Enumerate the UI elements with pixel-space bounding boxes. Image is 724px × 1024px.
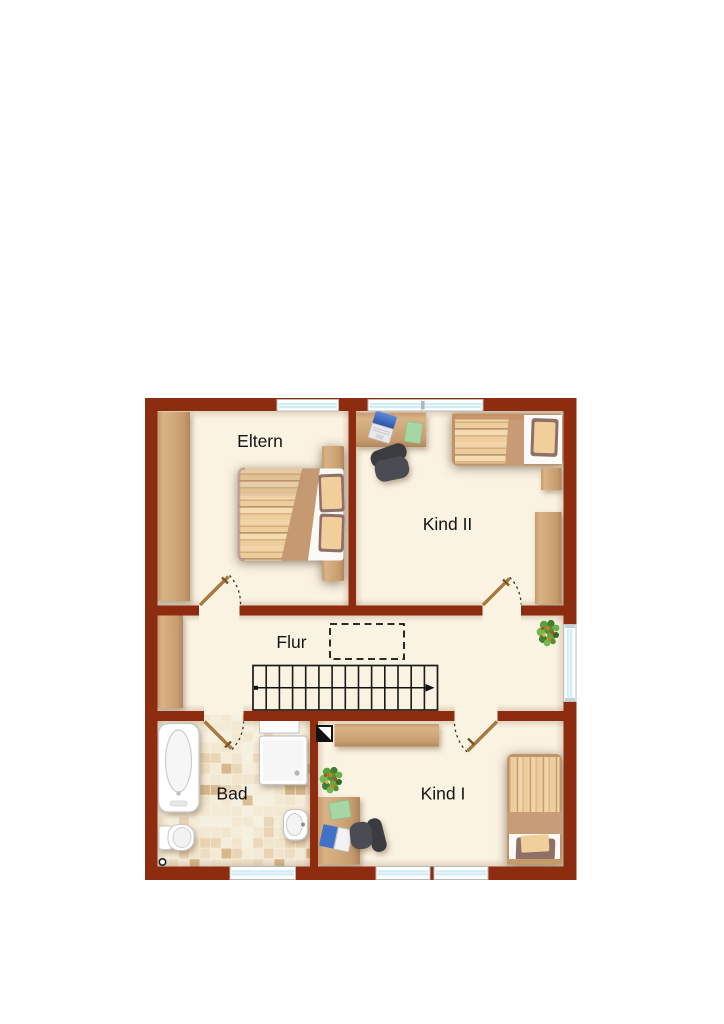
svg-text:Kind I: Kind I [421, 784, 466, 804]
svg-text:Bad: Bad [216, 784, 247, 804]
svg-text:Kind II: Kind II [423, 514, 473, 534]
svg-text:Flur: Flur [276, 632, 306, 652]
svg-text:Eltern: Eltern [237, 431, 283, 451]
